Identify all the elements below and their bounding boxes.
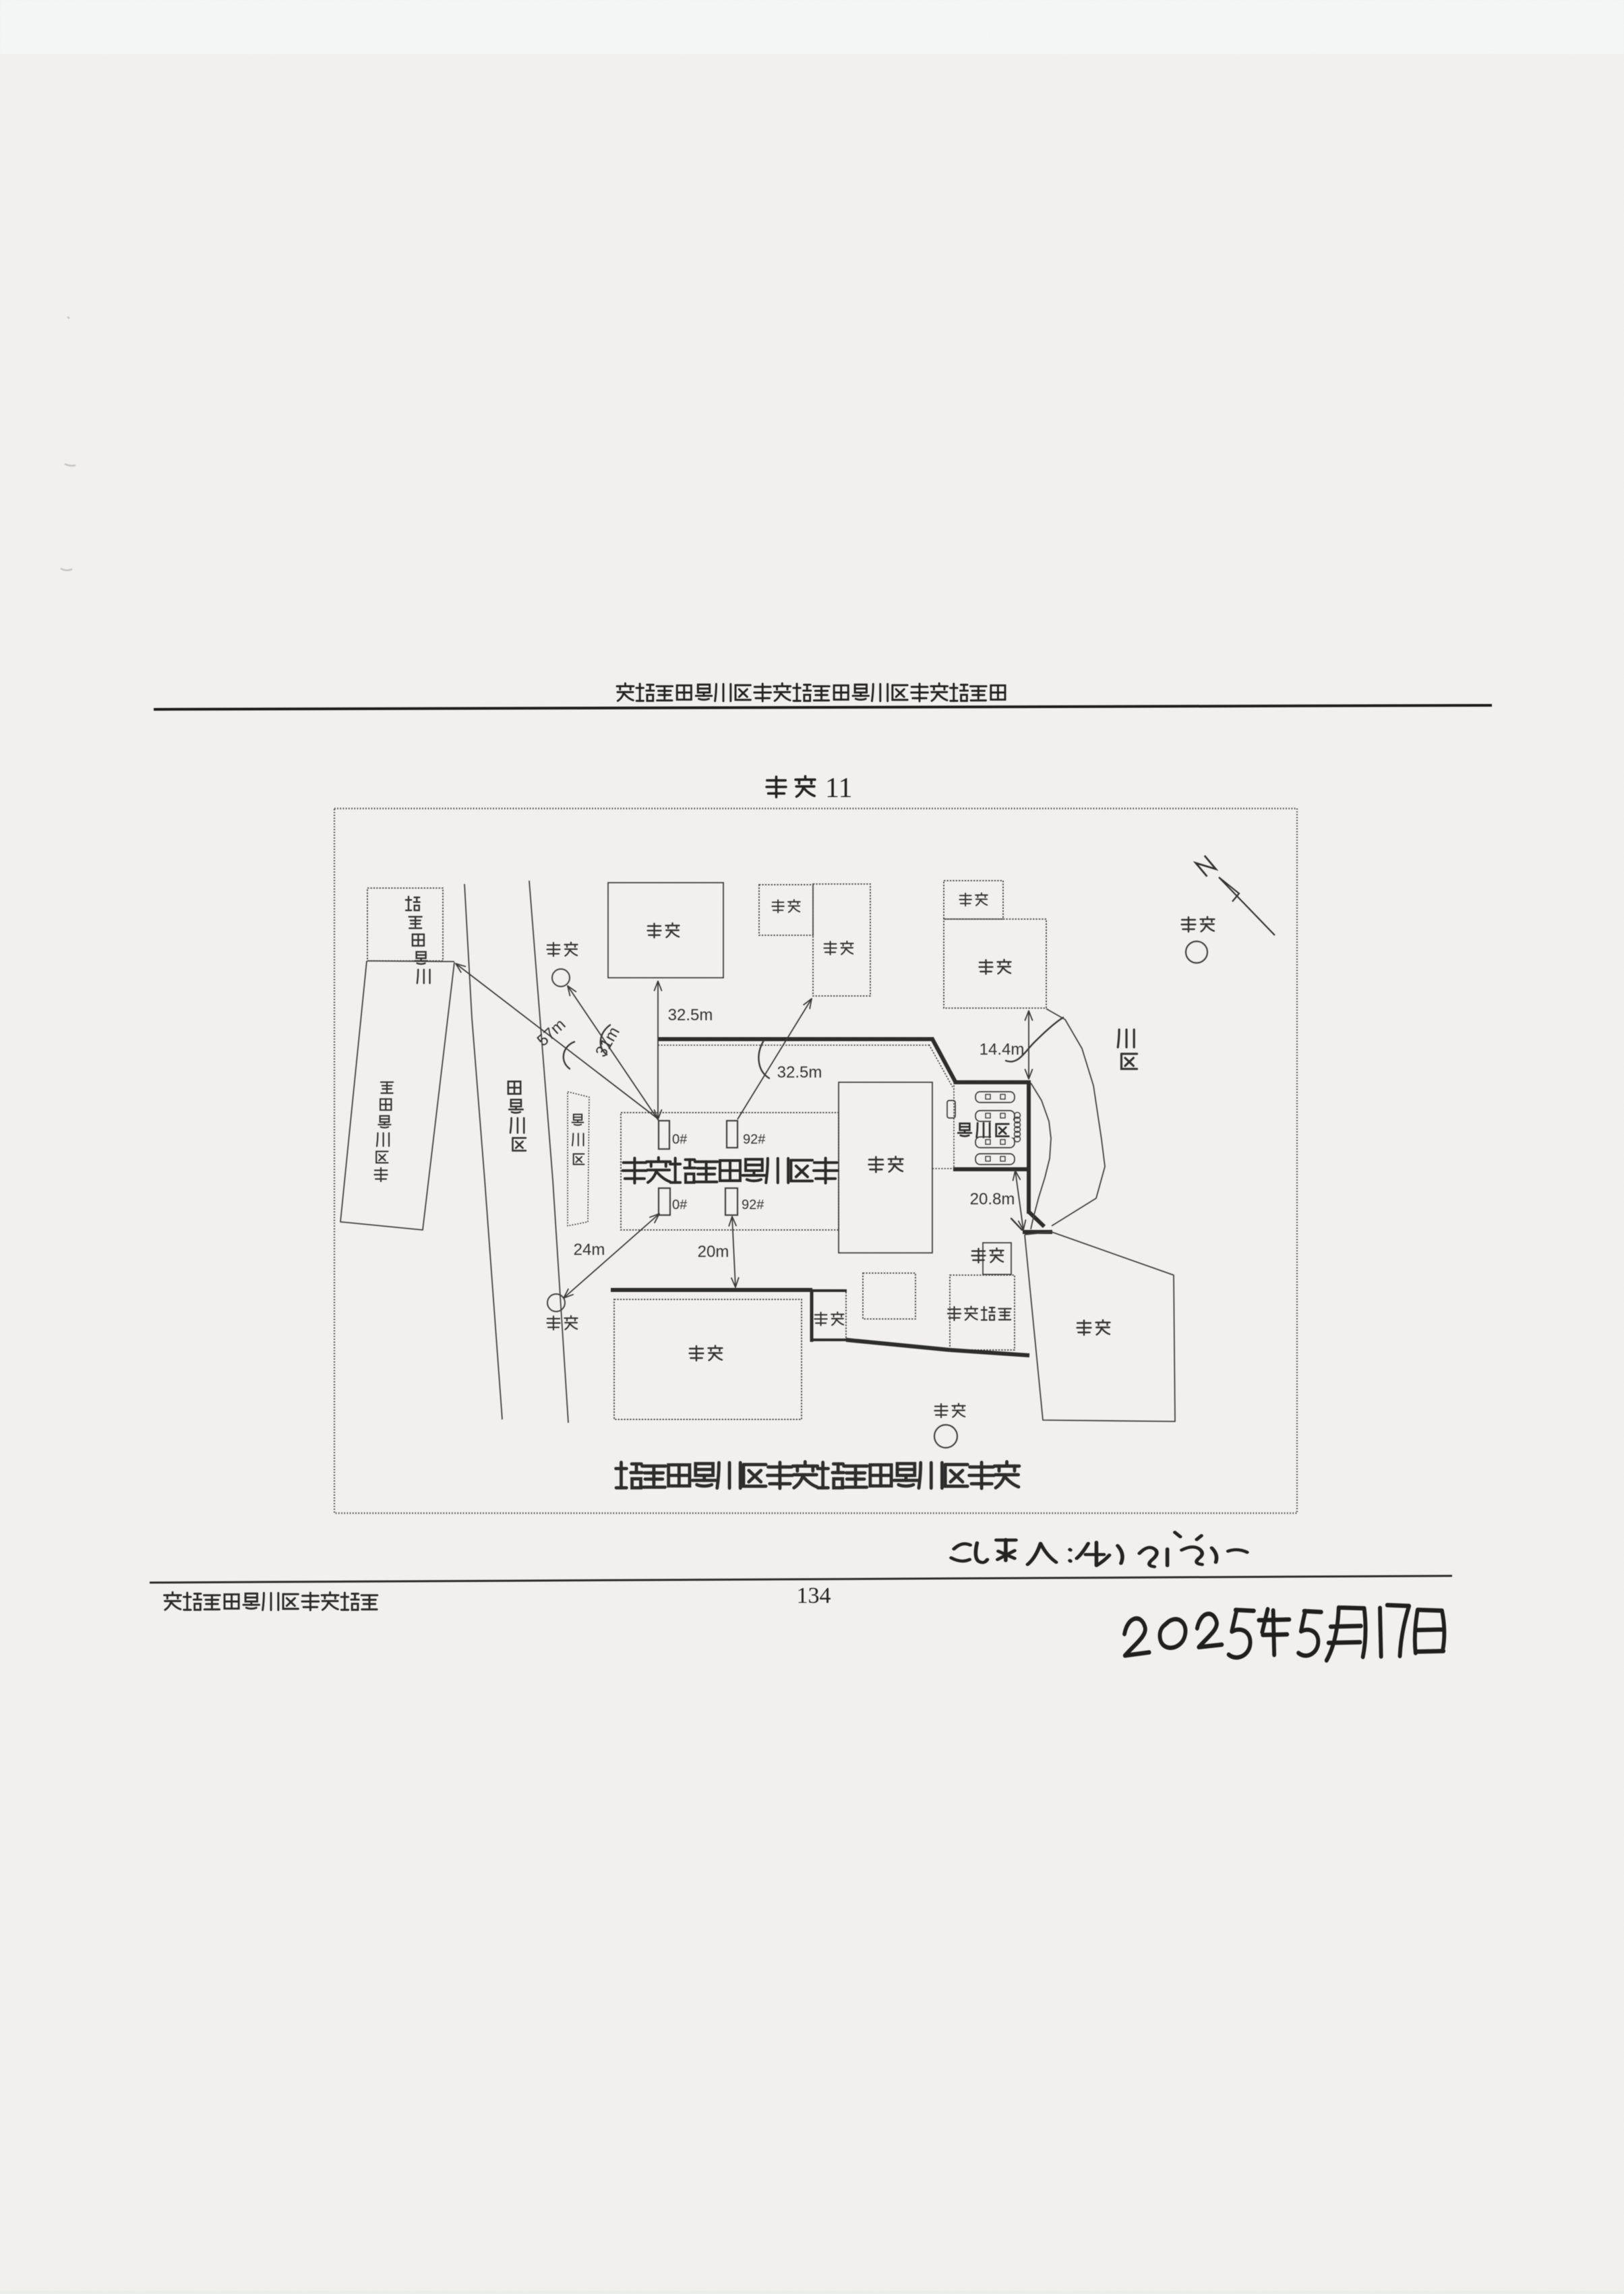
svg-text:20m: 20m (698, 1243, 729, 1261)
svg-text:0#: 0# (672, 1132, 688, 1147)
svg-text:0#: 0# (672, 1198, 688, 1212)
svg-text:32.5m: 32.5m (777, 1063, 822, 1082)
svg-text:11: 11 (825, 773, 852, 804)
svg-text:24m: 24m (574, 1241, 605, 1259)
svg-text:92#: 92# (743, 1132, 766, 1147)
svg-text:92#: 92# (742, 1198, 764, 1212)
svg-text:32.5m: 32.5m (668, 1006, 713, 1024)
svg-text:134: 134 (797, 1583, 831, 1608)
svg-text:14.4m: 14.4m (980, 1040, 1025, 1059)
svg-text:20.8m: 20.8m (970, 1190, 1015, 1208)
